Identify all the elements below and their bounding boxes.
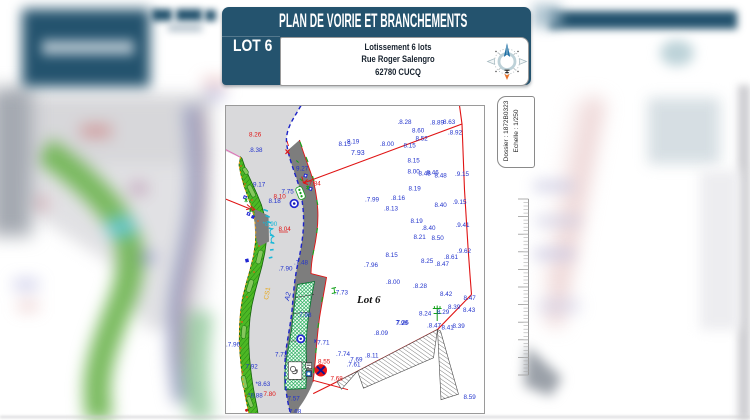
svg-text:7.80: 7.80 (264, 391, 277, 398)
svg-text:.8.38: .8.38 (249, 147, 264, 154)
svg-text:8.24: 8.24 (419, 311, 432, 318)
svg-text:8.18: 8.18 (269, 198, 282, 205)
svg-text:.8.47: .8.47 (435, 261, 450, 268)
svg-text:8.50: 8.50 (432, 235, 445, 242)
svg-text:7.92: 7.92 (246, 364, 259, 371)
svg-text:.9.62: .9.62 (457, 248, 472, 255)
svg-text:.9.15: .9.15 (455, 171, 470, 178)
svg-text:*8.90: *8.90 (263, 221, 278, 228)
svg-text:7.68: 7.68 (331, 376, 344, 383)
svg-text:8.21: 8.21 (414, 234, 427, 241)
svg-text:Lot 6: Lot 6 (356, 294, 381, 306)
svg-text:8.39: 8.39 (448, 304, 461, 311)
svg-text:8.63: 8.63 (443, 119, 456, 126)
svg-text:8.39: 8.39 (453, 323, 466, 330)
svg-text:.8.92: .8.92 (448, 130, 463, 137)
svg-text:.8.00: .8.00 (386, 279, 401, 286)
svg-text:8.60: 8.60 (412, 128, 425, 135)
svg-text:.7.61: .7.61 (347, 362, 362, 369)
svg-text:.9.41: .9.41 (456, 222, 471, 229)
svg-text:.7.99: .7.99 (365, 197, 380, 204)
svg-text:7.72: 7.72 (275, 352, 288, 359)
svg-text:9.27: 9.27 (296, 166, 309, 173)
svg-text:*8.63: *8.63 (256, 381, 271, 388)
svg-text:8.15: 8.15 (404, 143, 417, 150)
svg-text:.7.90: .7.90 (279, 266, 294, 273)
svg-text:.8.00: .8.00 (380, 141, 395, 148)
svg-text:7.84: 7.84 (309, 181, 322, 188)
svg-text:8.19: 8.19 (347, 139, 360, 146)
svg-text:8.29: 8.29 (437, 309, 450, 316)
svg-text:8.48: 8.48 (435, 173, 448, 180)
svg-text:.8.28: .8.28 (398, 119, 413, 126)
svg-text:8.15: 8.15 (408, 158, 421, 165)
svg-text:8.15: 8.15 (386, 252, 399, 259)
svg-text:.8.11: .8.11 (365, 353, 379, 360)
svg-text:8.43: 8.43 (463, 307, 476, 314)
svg-text:.7.71: .7.71 (316, 340, 331, 347)
svg-text:*8.88: *8.88 (248, 393, 263, 400)
svg-text:.7.96: .7.96 (364, 262, 379, 269)
svg-text:7.93: 7.93 (351, 150, 365, 157)
svg-text:.8.13: .8.13 (384, 206, 399, 213)
svg-text:8.47: 8.47 (464, 295, 477, 302)
svg-text:8.26: 8.26 (249, 132, 262, 139)
svg-text:.8.47: .8.47 (427, 323, 442, 330)
svg-text:.7.48: .7.48 (294, 260, 309, 267)
svg-text:.7.98: .7.98 (298, 312, 313, 319)
svg-text:8.19: 8.19 (411, 218, 424, 225)
svg-text:.9.15: .9.15 (453, 199, 468, 206)
svg-text:.7.73: .7.73 (334, 290, 349, 297)
svg-text:8.19: 8.19 (409, 186, 422, 193)
svg-text:8.52: 8.52 (416, 136, 429, 143)
svg-text:.8.40: .8.40 (422, 225, 437, 232)
svg-text:8.42: 8.42 (440, 291, 453, 298)
svg-text:9.17: 9.17 (253, 182, 266, 189)
svg-text:8.25: 8.25 (421, 258, 434, 265)
svg-text:7.57: 7.57 (288, 396, 301, 403)
svg-text:.8.09: .8.09 (374, 330, 389, 337)
svg-text:8.40: 8.40 (435, 202, 448, 209)
svg-text:.8.61: .8.61 (444, 254, 459, 261)
svg-text:.8.16: .8.16 (391, 195, 406, 202)
svg-text:.7.96: .7.96 (226, 342, 241, 349)
svg-text:.8.28: .8.28 (413, 283, 428, 290)
svg-text:7.26: 7.26 (397, 320, 410, 327)
svg-text:8.59: 8.59 (464, 394, 477, 401)
svg-text:8.55: 8.55 (318, 359, 331, 366)
